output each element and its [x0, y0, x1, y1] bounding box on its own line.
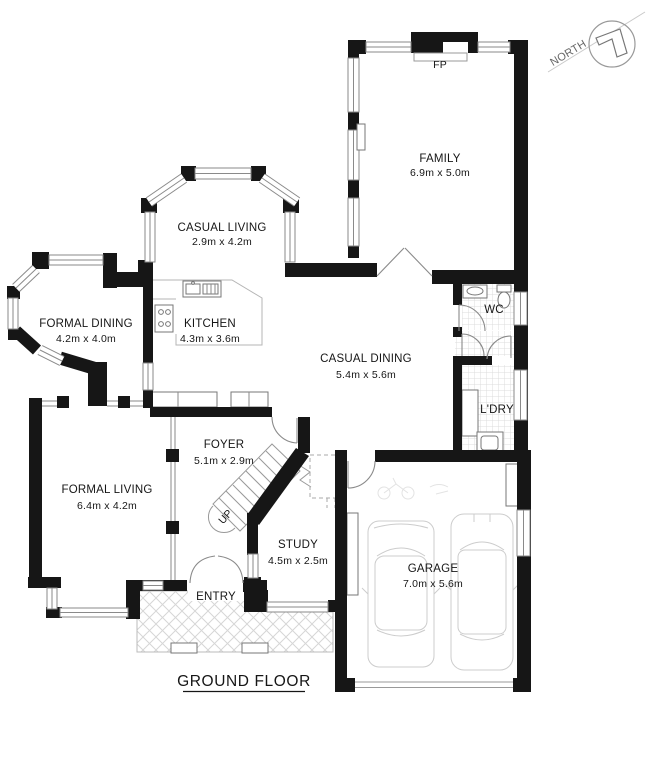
window [267, 602, 328, 612]
porch-step [171, 643, 197, 653]
car [362, 521, 440, 667]
room-label-wc: WC [484, 304, 504, 316]
window [285, 212, 295, 262]
window [195, 168, 251, 179]
room-label-garage: GARAGE [408, 563, 459, 575]
window [40, 350, 62, 361]
room-dims-foyer: 5.1m x 2.9m [194, 455, 254, 467]
window [348, 198, 359, 246]
room-label-kitchen: KITCHEN [184, 318, 236, 330]
window [47, 588, 57, 609]
window [143, 363, 153, 390]
post [166, 521, 179, 534]
exterior-walls [7, 32, 531, 692]
window [366, 42, 411, 52]
post [57, 396, 69, 408]
window [517, 510, 530, 556]
room-label-laundry: L'DRY [480, 404, 514, 416]
room-dims-formal-living: 6.4m x 4.2m [77, 500, 137, 512]
floor-plan: NORTH FP FAMILY 6.9m x 5.0m CASUAL LIVIN… [0, 0, 650, 772]
window [262, 178, 297, 202]
bench-seat [152, 392, 217, 407]
room-dims-formal-dining: 4.2m x 4.0m [56, 333, 116, 345]
garage-door [355, 682, 513, 688]
window [514, 370, 527, 420]
room-dims-casual-dining: 5.4m x 5.6m [336, 369, 396, 381]
kitchen-sink [183, 281, 221, 297]
garage-cupboard [347, 464, 518, 595]
window [348, 58, 359, 112]
room-label-casual-living: CASUAL LIVING [177, 222, 266, 234]
room-label-formal-dining: FORMAL DINING [39, 318, 133, 330]
window [478, 42, 510, 52]
door-garage-internal [348, 461, 375, 488]
plan-title: GROUND FLOOR [177, 673, 311, 692]
car [445, 514, 519, 670]
room-dims-kitchen: 4.3m x 3.6m [180, 333, 240, 345]
north-arrow-icon [596, 29, 627, 57]
north-label: NORTH [548, 38, 588, 69]
room-label-casual-dining: CASUAL DINING [320, 353, 412, 365]
stove [155, 305, 173, 332]
laundry-bench [462, 390, 478, 436]
room-label-foyer: FOYER [204, 439, 245, 451]
window [248, 554, 258, 578]
room-dims-family: 6.9m x 5.0m [410, 167, 470, 179]
door-foyer [272, 417, 297, 443]
room-label-family: FAMILY [419, 153, 460, 165]
room-label-entry: ENTRY [196, 591, 236, 603]
door-entry-double [190, 556, 243, 583]
room-label-study: STUDY [278, 539, 318, 551]
stored-bicycles [378, 478, 448, 499]
window [143, 581, 163, 590]
page-title: GROUND FLOOR [177, 673, 311, 690]
window [49, 255, 103, 265]
window [16, 269, 36, 288]
room-dims-garage: 7.0m x 5.6m [403, 578, 463, 590]
window [514, 292, 527, 325]
room-dims-casual-living: 2.9m x 4.2m [192, 236, 252, 248]
post [166, 449, 179, 462]
window [145, 212, 155, 262]
fireplace-label: FP [433, 59, 447, 71]
wash-basin [463, 285, 487, 298]
window [8, 298, 18, 329]
porch-step [242, 643, 268, 653]
room-labels: FP FAMILY 6.9m x 5.0m CASUAL LIVING 2.9m… [39, 59, 514, 603]
door-family-double [377, 248, 432, 276]
room-label-formal-living: FORMAL LIVING [62, 484, 153, 496]
window [60, 608, 128, 617]
north-compass-icon: NORTH [548, 12, 645, 72]
room-dims-study: 4.5m x 2.5m [268, 555, 328, 567]
post [118, 396, 130, 408]
wall-niche [357, 124, 365, 150]
window [149, 178, 184, 202]
floor-plan-page: NORTH FP FAMILY 6.9m x 5.0m CASUAL LIVIN… [0, 0, 650, 772]
